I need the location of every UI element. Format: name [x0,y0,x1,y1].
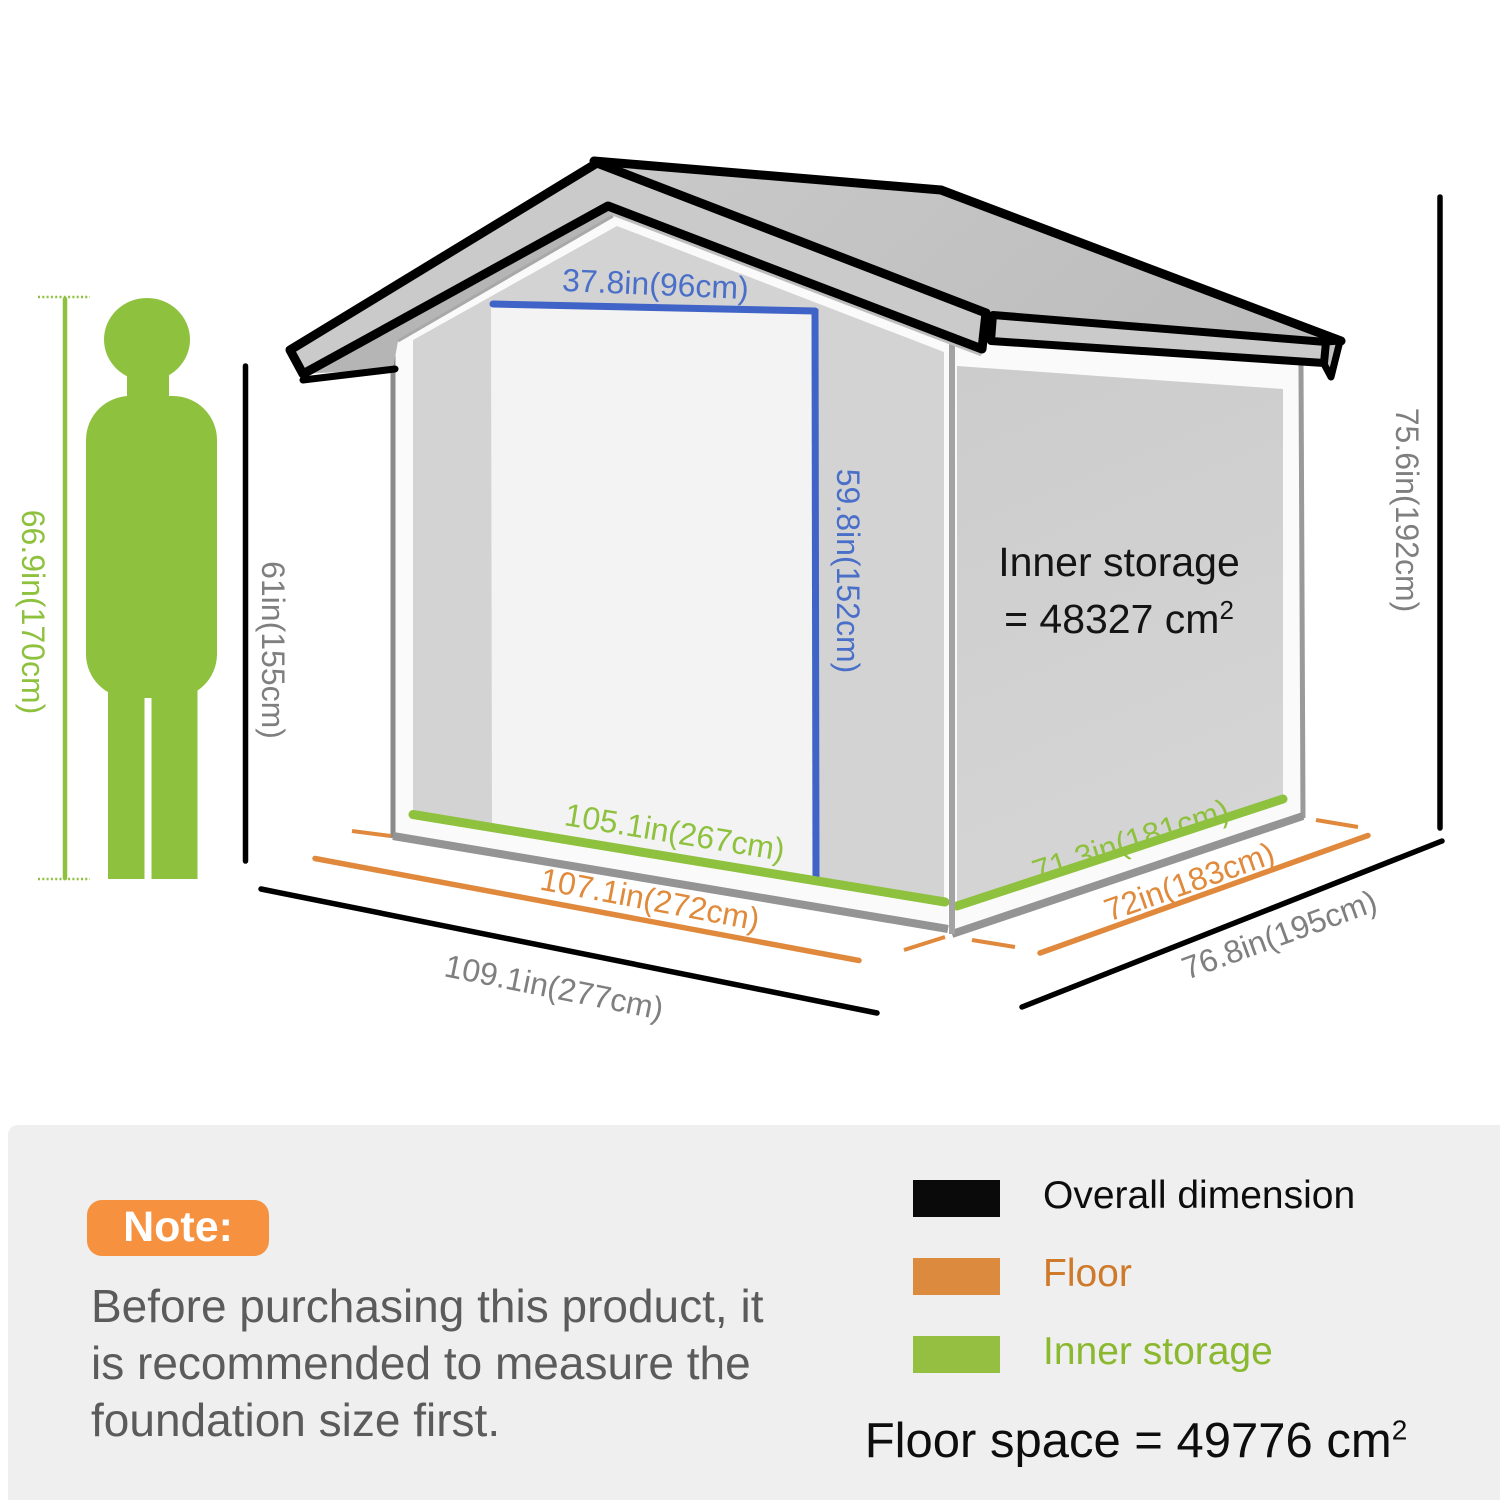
svg-text:66.9in(170cm): 66.9in(170cm) [15,510,51,715]
svg-text:75.6in(192cm): 75.6in(192cm) [1389,408,1425,613]
svg-text:Inner storage: Inner storage [998,539,1240,585]
svg-text:109.1in(277cm): 109.1in(277cm) [442,948,667,1027]
svg-text:61in(155cm): 61in(155cm) [255,561,291,739]
svg-text:= 48327 cm2: = 48327 cm2 [1004,595,1234,642]
svg-text:59.8in(152cm): 59.8in(152cm) [830,469,866,674]
